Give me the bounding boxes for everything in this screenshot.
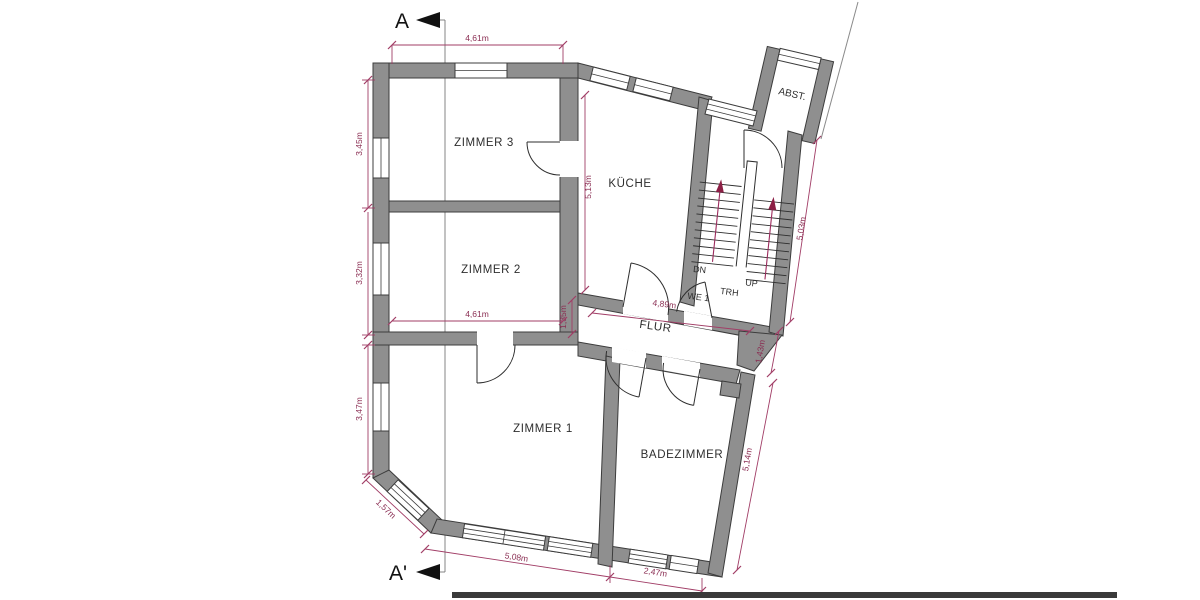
dim-z3-height: 3,45m — [354, 76, 375, 212]
dim-z1-left-height: 3,47m — [354, 341, 375, 478]
svg-text:3,45m: 3,45m — [354, 132, 364, 156]
window-zimmer1-bottom-2 — [547, 537, 593, 558]
stair-spine-wall — [736, 161, 757, 267]
room-label-trh: TRH — [720, 286, 740, 298]
window-left-zimmer1 — [373, 383, 389, 431]
wall-z2-z1-divider — [373, 332, 578, 345]
entry-window-band — [705, 99, 757, 126]
window-left-zimmer3 — [373, 138, 389, 178]
wall-bad-notch — [720, 381, 741, 398]
door-badezimmer — [662, 356, 700, 405]
door-kueche — [623, 263, 669, 322]
svg-text:4,61m: 4,61m — [465, 309, 489, 319]
wall-z3-z2-divider — [389, 201, 560, 212]
svg-text:5,13m: 5,13m — [583, 175, 593, 199]
wall-flur-bottom — [578, 342, 740, 384]
svg-text:1,57m: 1,57m — [374, 497, 398, 521]
window-left-zimmer2 — [373, 243, 389, 295]
door-zimmer3 — [527, 141, 579, 177]
stair-arrow-up — [765, 208, 773, 280]
room-label-abst: ABST. — [777, 86, 807, 103]
room-label-zimmer1: ZIMMER 1 — [513, 423, 573, 435]
wall-bad-right — [708, 372, 755, 577]
stair-label-dn: DN — [693, 264, 707, 275]
window-bad-bottom-2 — [669, 555, 699, 573]
section-label-top: A — [395, 10, 409, 33]
room-label-kueche: KÜCHE — [608, 178, 651, 190]
wall-abst-right — [802, 59, 834, 144]
wall-z3-z2-right — [560, 78, 578, 345]
room-label-zimmer2: ZIMMER 2 — [461, 264, 521, 276]
abst-annex-group: ABST. — [748, 45, 833, 143]
doors-group — [477, 130, 782, 405]
wall-z1-bad-divider — [598, 356, 620, 567]
svg-text:3,32m: 3,32m — [354, 261, 364, 285]
floor-plan-svg: A A' ABST. — [0, 0, 1200, 600]
dim-z2-height: 3,32m — [354, 212, 375, 339]
walls-group — [373, 63, 802, 577]
svg-text:4,61m: 4,61m — [465, 33, 489, 43]
svg-text:5,03m: 5,03m — [794, 216, 808, 241]
window-zimmer1-bottom-1 — [462, 524, 545, 550]
section-arrow-bottom — [416, 564, 440, 580]
dim-kueche-height: 5,13m — [581, 91, 593, 294]
room-label-badezimmer: BADEZIMMER — [641, 449, 724, 461]
section-arrow-top — [416, 12, 440, 28]
sheet-edge-bar — [452, 592, 1117, 598]
wall-stair-left — [680, 97, 713, 306]
dim-z3-width: 4,61m — [388, 33, 567, 64]
room-label-zimmer3: ZIMMER 3 — [454, 137, 514, 149]
window-zimmer3-top — [455, 63, 507, 78]
section-label-bottom: A' — [389, 562, 407, 585]
dim-z2-width: 4,61m — [388, 309, 567, 325]
svg-text:3,47m: 3,47m — [354, 397, 364, 421]
door-zimmer2 — [477, 331, 515, 383]
stair-arrow-dn — [712, 190, 720, 262]
floor-plan-canvas: A A' ABST. — [0, 0, 1200, 600]
stair-label-up: UP — [745, 277, 758, 288]
